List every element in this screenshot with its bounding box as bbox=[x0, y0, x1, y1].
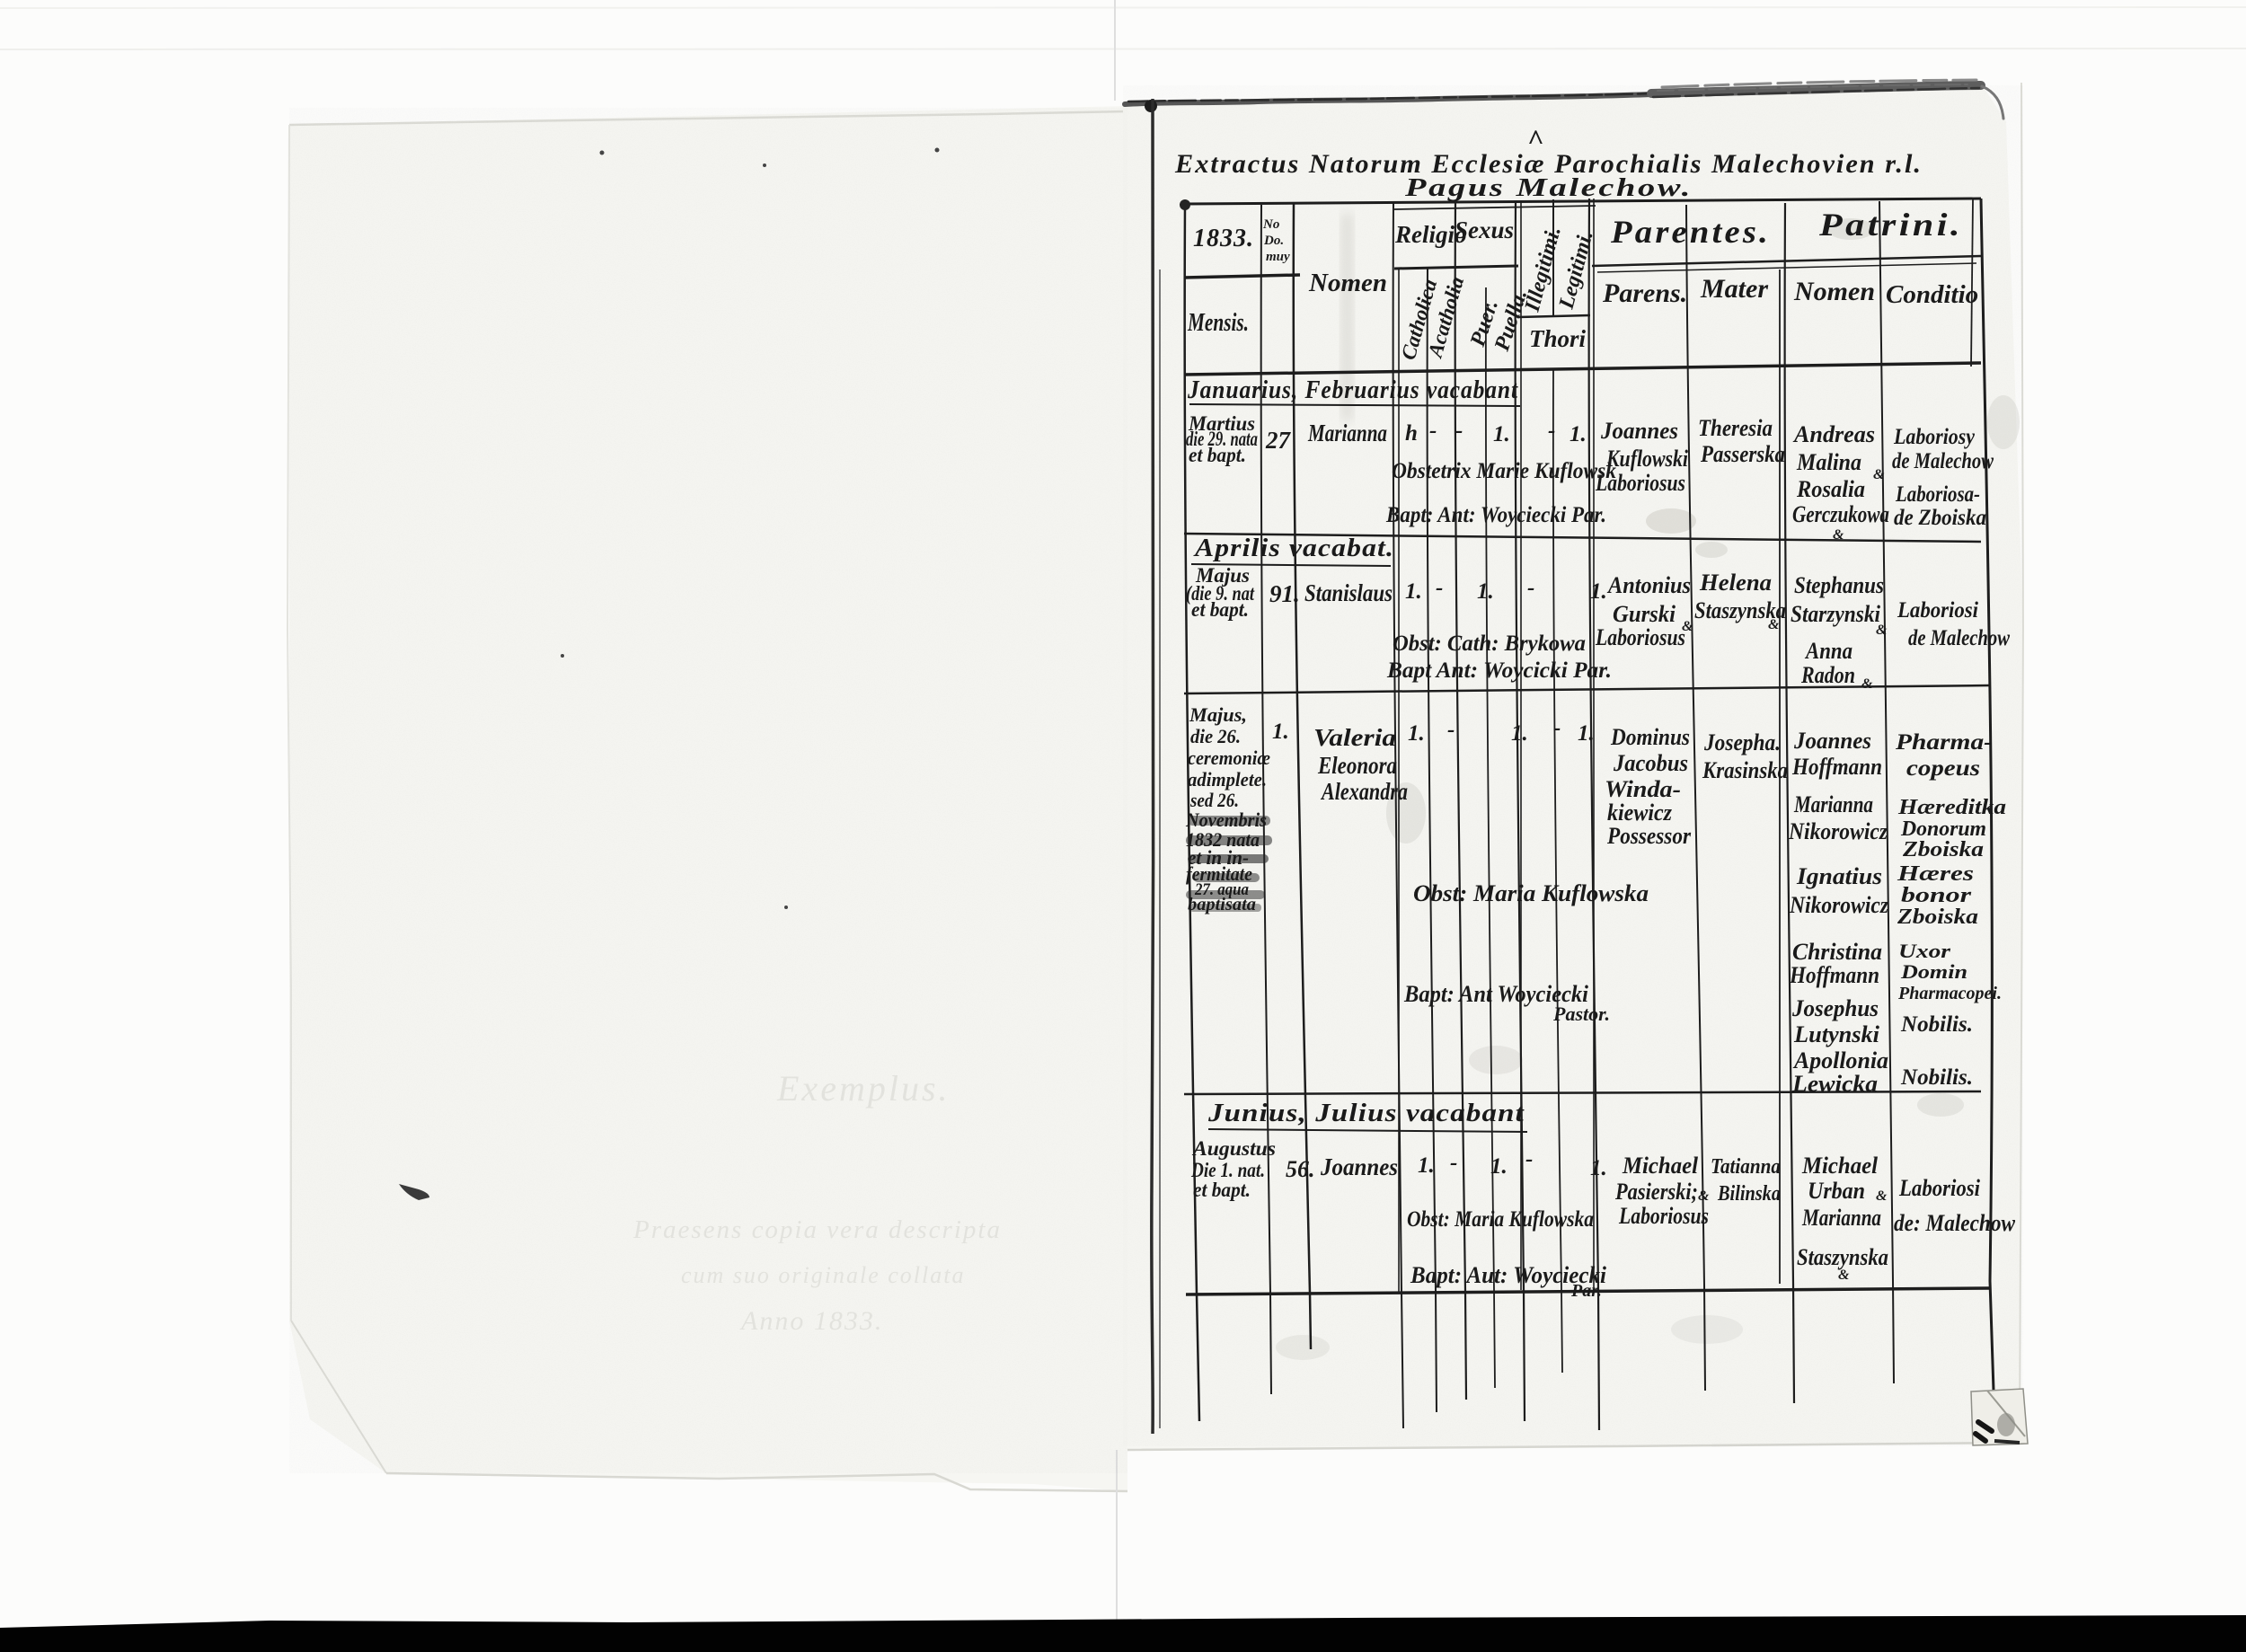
svg-text:Theresia: Theresia bbox=[1698, 415, 1773, 441]
svg-text:et bapt.: et bapt. bbox=[1189, 444, 1246, 466]
svg-text:Obstetrix Marie Kuflowsk: Obstetrix Marie Kuflowsk bbox=[1392, 459, 1616, 483]
svg-text:Pharma-: Pharma- bbox=[1895, 730, 1993, 755]
svg-text:Joannes: Joannes bbox=[1793, 728, 1871, 754]
svg-text:Hoffmann: Hoffmann bbox=[1789, 962, 1879, 988]
svg-text:Possessor: Possessor bbox=[1606, 823, 1692, 849]
svg-text:Obst: Maria Kuflowska: Obst: Maria Kuflowska bbox=[1407, 1207, 1594, 1232]
svg-text:Laboriosi: Laboriosi bbox=[1897, 598, 1978, 623]
svg-text:Bilinska: Bilinska bbox=[1717, 1182, 1781, 1206]
svg-text:&: & bbox=[1873, 467, 1885, 482]
svg-text:Dominus: Dominus bbox=[1610, 724, 1690, 750]
svg-text:Michael: Michael bbox=[1622, 1153, 1699, 1179]
svg-text:1833.: 1833. bbox=[1193, 225, 1254, 252]
svg-text:&: & bbox=[1768, 617, 1780, 632]
svg-text:Jacobus: Jacobus bbox=[1613, 750, 1688, 776]
svg-text:bonor: bonor bbox=[1901, 884, 1972, 907]
svg-text:Andreas: Andreas bbox=[1792, 421, 1875, 447]
svg-text:Lewicka: Lewicka bbox=[1791, 1071, 1878, 1097]
svg-text:&: & bbox=[1833, 527, 1844, 543]
svg-text:Mensis.: Mensis. bbox=[1187, 308, 1249, 337]
svg-text:1.: 1. bbox=[1408, 721, 1425, 746]
svg-text:Laboriosus: Laboriosus bbox=[1618, 1203, 1709, 1229]
svg-text:Joannes: Joannes bbox=[1600, 418, 1678, 444]
svg-text:Pagus Malechow.: Pagus Malechow. bbox=[1404, 173, 1693, 202]
svg-text:et bapt.: et bapt. bbox=[1193, 1179, 1251, 1201]
svg-text:Nomen: Nomen bbox=[1308, 269, 1387, 297]
svg-text:Krasinska: Krasinska bbox=[1702, 757, 1788, 783]
svg-text:Josephus: Josephus bbox=[1791, 995, 1879, 1021]
svg-text:Pharmacopei.: Pharmacopei. bbox=[1897, 984, 2002, 1003]
svg-text:Laboriosi: Laboriosi bbox=[1898, 1175, 1981, 1201]
svg-text:Pasierski;: Pasierski; bbox=[1614, 1179, 1698, 1205]
svg-text:&: & bbox=[1876, 1188, 1888, 1204]
svg-text:Joannes: Joannes bbox=[1320, 1153, 1398, 1180]
svg-text:baptisata: baptisata bbox=[1188, 895, 1256, 914]
svg-text:Patrini.: Patrini. bbox=[1818, 207, 1963, 243]
svg-text:adimplete.: adimplete. bbox=[1188, 768, 1267, 791]
svg-text:die 26.: die 26. bbox=[1190, 725, 1241, 747]
svg-text:1.: 1. bbox=[1405, 579, 1422, 604]
svg-text:Majus,: Majus, bbox=[1189, 703, 1247, 726]
svg-text:Hæreditka: Hæreditka bbox=[1897, 796, 2006, 819]
svg-text:Pastor.: Pastor. bbox=[1552, 1003, 1610, 1025]
svg-text:Marianna: Marianna bbox=[1793, 791, 1873, 817]
svg-text:Antonius: Antonius bbox=[1606, 572, 1691, 598]
svg-text:h: h bbox=[1405, 421, 1418, 446]
svg-text:1.: 1. bbox=[1511, 721, 1528, 746]
svg-text:-: - bbox=[1429, 419, 1437, 443]
svg-text:Parentes.: Parentes. bbox=[1610, 214, 1771, 250]
svg-text:-: - bbox=[1548, 419, 1555, 443]
svg-text:de Malechow: de Malechow bbox=[1892, 449, 1994, 473]
svg-text:1.: 1. bbox=[1477, 579, 1494, 604]
svg-text:&: & bbox=[1876, 623, 1888, 638]
svg-text:-: - bbox=[1455, 419, 1463, 443]
svg-text:de Zboiska: de Zboiska bbox=[1894, 506, 1986, 530]
svg-text:Stephanus: Stephanus bbox=[1794, 572, 1884, 598]
svg-text:-: - bbox=[1447, 718, 1455, 742]
svg-text:Stanislaus: Stanislaus bbox=[1304, 579, 1393, 606]
svg-text:Bapt Ant: Woycicki Par.: Bapt Ant: Woycicki Par. bbox=[1386, 658, 1612, 683]
svg-text:^: ^ bbox=[1527, 123, 1543, 155]
svg-text:91.: 91. bbox=[1269, 580, 1300, 607]
svg-text:Bapt: Ant: Woyciecki Par.: Bapt: Ant: Woyciecki Par. bbox=[1385, 503, 1606, 527]
svg-text:et bapt.: et bapt. bbox=[1191, 598, 1249, 621]
svg-text:Laboriosa-: Laboriosa- bbox=[1895, 482, 1980, 507]
svg-text:27: 27 bbox=[1265, 427, 1292, 454]
svg-text:Anna: Anna bbox=[1804, 638, 1853, 664]
svg-text:muy: muy bbox=[1266, 250, 1290, 264]
svg-text:1.: 1. bbox=[1578, 721, 1595, 746]
svg-text:Kuflowski: Kuflowski bbox=[1605, 446, 1688, 472]
svg-text:Michael: Michael bbox=[1801, 1153, 1879, 1179]
svg-text:Apollonia: Apollonia bbox=[1792, 1047, 1888, 1073]
svg-text:Obst: Cath: Brykowa: Obst: Cath: Brykowa bbox=[1393, 632, 1586, 656]
svg-text:Do.: Do. bbox=[1263, 234, 1284, 248]
svg-text:Laboriosy: Laboriosy bbox=[1893, 425, 1976, 449]
svg-text:Nobilis.: Nobilis. bbox=[1900, 1012, 1973, 1037]
svg-text:Conditio: Conditio bbox=[1886, 280, 1978, 309]
svg-text:Josepha.: Josepha. bbox=[1703, 729, 1781, 755]
svg-text:Gerczukowa: Gerczukowa bbox=[1792, 501, 1889, 527]
svg-text:Obst: Maria Kuflowska: Obst: Maria Kuflowska bbox=[1413, 880, 1649, 906]
svg-text:Winda-: Winda- bbox=[1605, 776, 1681, 802]
svg-text:1.: 1. bbox=[1490, 1154, 1508, 1179]
svg-text:Nomen: Nomen bbox=[1793, 277, 1875, 306]
svg-text:Eleonora: Eleonora bbox=[1317, 752, 1397, 779]
svg-text:Valeria: Valeria bbox=[1313, 724, 1396, 751]
svg-text:Alexandra: Alexandra bbox=[1320, 778, 1408, 805]
svg-text:Zboiska: Zboiska bbox=[1902, 838, 1984, 861]
svg-text:&: & bbox=[1838, 1268, 1850, 1283]
svg-text:Starzynski: Starzynski bbox=[1791, 601, 1881, 627]
svg-text:Sexus: Sexus bbox=[1455, 216, 1514, 243]
svg-text:Thori: Thori bbox=[1529, 325, 1587, 352]
svg-text:&: & bbox=[1861, 676, 1873, 692]
svg-text:Par.: Par. bbox=[1570, 1281, 1602, 1301]
svg-text:1.: 1. bbox=[1493, 422, 1510, 446]
svg-text:copeus: copeus bbox=[1906, 756, 1980, 781]
svg-text:Tatianna: Tatianna bbox=[1711, 1155, 1781, 1179]
svg-text:Junius, Julius vacabant: Junius, Julius vacabant bbox=[1207, 1100, 1525, 1127]
svg-text:Zboiska: Zboiska bbox=[1897, 906, 1978, 929]
svg-text:ceremoniæ: ceremoniæ bbox=[1188, 746, 1270, 769]
svg-text:-: - bbox=[1527, 576, 1534, 600]
svg-text:Laboriosus: Laboriosus bbox=[1595, 624, 1685, 650]
svg-text:Radon: Radon bbox=[1800, 662, 1855, 688]
svg-text:Urban: Urban bbox=[1808, 1178, 1865, 1204]
svg-text:1.: 1. bbox=[1590, 579, 1607, 604]
svg-text:1.: 1. bbox=[1272, 720, 1289, 744]
svg-text:de: Malechow: de: Malechow bbox=[1894, 1210, 2016, 1236]
svg-text:1.: 1. bbox=[1418, 1153, 1435, 1178]
svg-text:Mater: Mater bbox=[1700, 274, 1768, 304]
svg-text:Hæres: Hæres bbox=[1897, 862, 1974, 886]
svg-text:kiewicz: kiewicz bbox=[1607, 799, 1673, 826]
svg-text:-: - bbox=[1436, 576, 1443, 600]
svg-text:No: No bbox=[1262, 217, 1279, 232]
svg-text:Augustus: Augustus bbox=[1191, 1137, 1276, 1160]
svg-text:Nobilis.: Nobilis. bbox=[1900, 1065, 1973, 1090]
svg-text:-: - bbox=[1553, 716, 1561, 740]
svg-text:Nikorowicz: Nikorowicz bbox=[1788, 818, 1888, 844]
svg-text:56.: 56. bbox=[1286, 1156, 1315, 1182]
svg-text:1.: 1. bbox=[1570, 422, 1587, 446]
svg-text:-: - bbox=[1525, 1147, 1533, 1171]
svg-text:Lutynski: Lutynski bbox=[1793, 1021, 1880, 1047]
svg-text:Staszynska: Staszynska bbox=[1797, 1244, 1888, 1270]
svg-text:Malina: Malina bbox=[1796, 449, 1861, 475]
svg-text:Nikorowicz: Nikorowicz bbox=[1789, 892, 1889, 918]
svg-text:-: - bbox=[1450, 1151, 1457, 1175]
svg-text:Hoffmann: Hoffmann bbox=[1791, 754, 1882, 780]
svg-text:Parens.: Parens. bbox=[1602, 278, 1687, 308]
svg-text:Januarius, Februarius vacabant: Januarius, Februarius vacabant bbox=[1187, 376, 1518, 404]
svg-text:Marianna: Marianna bbox=[1307, 420, 1387, 446]
svg-text:Rosalia: Rosalia bbox=[1796, 476, 1865, 502]
svg-text:Gurski: Gurski bbox=[1613, 601, 1676, 627]
svg-text:&: & bbox=[1698, 1188, 1710, 1204]
svg-text:Helena: Helena bbox=[1699, 570, 1772, 596]
svg-text:Uxor: Uxor bbox=[1898, 940, 1951, 962]
svg-text:Passerska: Passerska bbox=[1700, 441, 1785, 467]
svg-text:Marianna: Marianna bbox=[1801, 1205, 1881, 1231]
svg-text:Ignatius: Ignatius bbox=[1796, 863, 1882, 889]
svg-text:Christina: Christina bbox=[1792, 939, 1882, 965]
svg-text:de Malechow: de Malechow bbox=[1908, 626, 2010, 650]
svg-text:1.: 1. bbox=[1590, 1156, 1607, 1180]
svg-text:Aprilis vacabat.: Aprilis vacabat. bbox=[1193, 534, 1394, 562]
svg-text:Domin: Domin bbox=[1900, 960, 1967, 983]
